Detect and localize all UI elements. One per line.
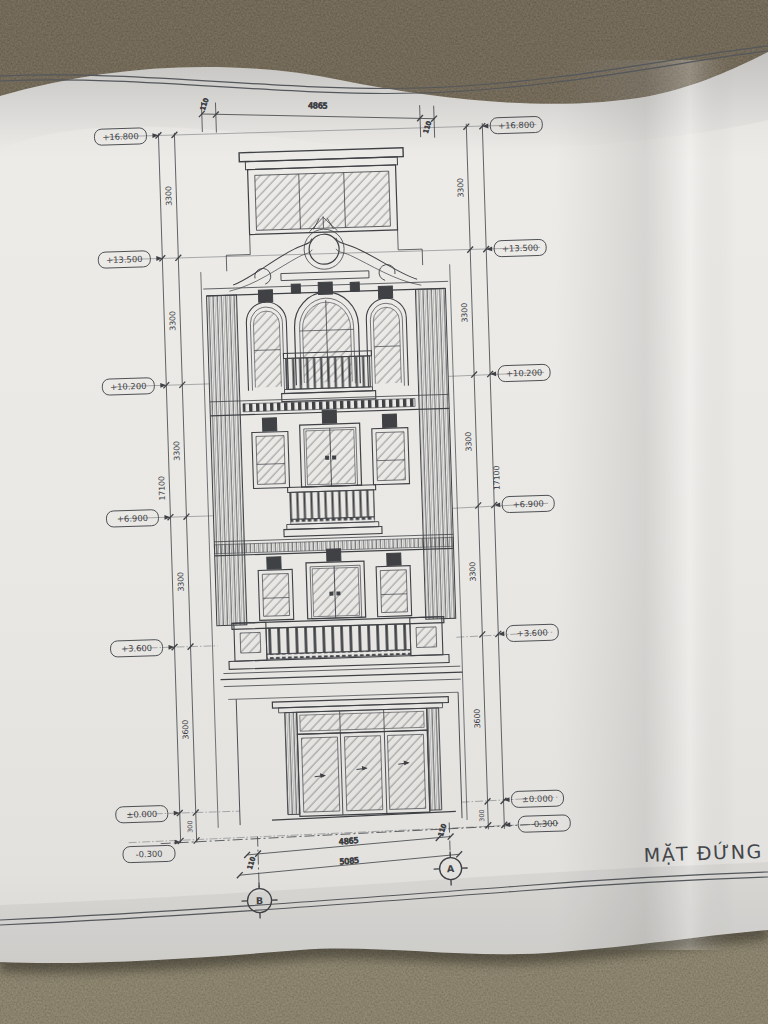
keystone: [378, 286, 392, 298]
elevation-tag-label: ±0.000: [126, 809, 157, 820]
floor3-window-right: [372, 428, 410, 485]
bottom-total-label: 5085: [339, 856, 359, 867]
keystone: [387, 553, 401, 565]
floor-dim-label: 3600: [181, 720, 191, 740]
floor-dim-label: 3300: [164, 186, 174, 206]
elevation-tag-label: +16.800: [102, 131, 139, 142]
paper-crease: [555, 60, 735, 950]
keystone: [258, 290, 272, 302]
elevation-tag-label: +16.800: [498, 120, 535, 131]
floor-dim-label: 3300: [168, 311, 178, 331]
floor2-center-door: [306, 561, 366, 619]
keystone: [382, 414, 396, 427]
bottom-width-label: 4865: [338, 836, 358, 847]
top-width-label: 4865: [308, 101, 328, 110]
keystone: [327, 549, 341, 561]
scene: 3300 3300 3300 3300 3600 300 17100 +16.8…: [0, 0, 768, 1024]
elevation-tag-label: +3.600: [121, 643, 152, 654]
floor-dim-label: 3300: [460, 303, 470, 323]
photo-of-architectural-drawing: 3300 3300 3300 3300 3600 300 17100 +16.8…: [0, 0, 768, 1024]
floor-dim-label: 3300: [456, 178, 466, 198]
elevation-tag-label: +3.600: [517, 627, 548, 638]
floor-dim-label: 3600: [473, 709, 483, 729]
grid-label-b: B: [256, 895, 264, 906]
floor3-window-left: [252, 431, 290, 488]
elevation-tag-label: -0.300: [135, 849, 162, 860]
floor-dim-label: 300: [478, 809, 486, 822]
elevation-tag-label: +10.200: [110, 381, 147, 392]
floor2-window-right: [376, 566, 412, 617]
floor-dim-label: 3300: [468, 562, 478, 582]
elevation-tag-label: +13.500: [502, 242, 539, 253]
floor-dim-label: 3300: [464, 432, 474, 452]
keystone: [267, 557, 281, 569]
keystone: [262, 418, 276, 431]
elevation-tag-label: +10.200: [506, 367, 543, 378]
keystone: [322, 410, 336, 423]
elevation-tag-label: +13.500: [106, 254, 143, 265]
entrance-doors: [297, 730, 430, 816]
keystone: [318, 282, 332, 294]
floor-dim-label: 300: [186, 820, 194, 833]
grid-label-a: A: [447, 863, 455, 874]
elevation-tag-label: +6.900: [513, 498, 544, 509]
floor3-center-door: [300, 423, 362, 487]
overall-dim-label: 17100: [492, 465, 502, 490]
floor-dim-label: 3300: [172, 441, 182, 461]
floor-dim-label: 3300: [176, 572, 186, 592]
overall-dim-label: 17100: [157, 476, 167, 501]
elevation-tag-label: ±0.000: [522, 793, 553, 804]
floor2-window-left: [258, 569, 294, 620]
elevation-tag-label: +6.900: [117, 513, 148, 524]
